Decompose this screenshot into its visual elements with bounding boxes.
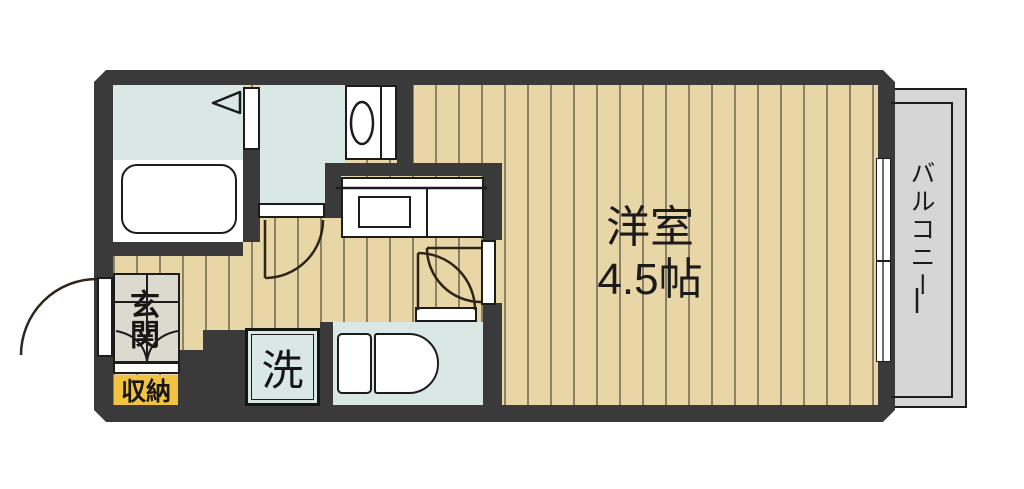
laundry-label: 洗 (261, 337, 303, 398)
storage-label: 収納 (121, 372, 171, 408)
washbasin (345, 85, 397, 160)
toilet-tank (337, 333, 372, 394)
main-room-door-opening (481, 240, 496, 305)
main-room-size: 4.5帖 (540, 254, 760, 306)
wall-below-hall (178, 350, 205, 405)
entrance-label: 玄関 (131, 289, 163, 349)
wall-kitchen-mainroom (483, 163, 502, 240)
wall-toilet-mainroom (483, 303, 502, 405)
wall-above-kitchen (325, 163, 502, 176)
toilet-bowl (374, 333, 439, 394)
balcony-label: バルコニー (906, 160, 936, 330)
entrance-door-arc (21, 279, 97, 355)
main-room-label: 洋室 4.5帖 (540, 202, 760, 306)
washing-machine-inner-frame: 洗 (251, 334, 314, 400)
wall-right-of-basin (397, 85, 413, 163)
main-room-name: 洋室 (540, 202, 760, 254)
floor-plan: バルコニー 洗 玄関 収納 洋室 (0, 0, 1024, 489)
bathroom-floor (113, 85, 243, 160)
washing-machine-space: 洗 (245, 328, 320, 406)
toilet-door-opening (415, 307, 477, 322)
wall-left-of-toiletroom (320, 322, 333, 405)
wall-below-bath (113, 242, 243, 256)
bathtub (121, 164, 237, 234)
washroom-door-opening (258, 203, 325, 218)
sliding-window (876, 158, 891, 362)
bath-folding-door (243, 87, 260, 150)
storage-label-box: 収納 (114, 375, 178, 405)
kitchen-sink (358, 196, 411, 228)
wall-bath-washroom (243, 150, 260, 242)
entrance-door-leaf (97, 277, 113, 357)
wall-left-of-kitchen (325, 176, 341, 218)
wall-right-of-entrance (203, 330, 245, 405)
